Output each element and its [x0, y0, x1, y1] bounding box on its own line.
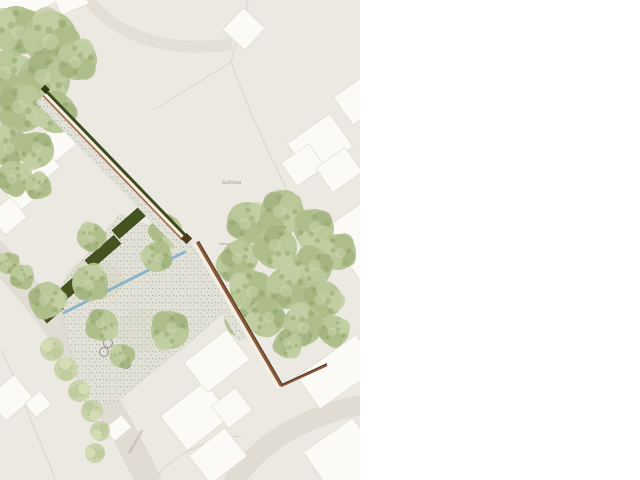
- tree: [10, 265, 34, 290]
- label-schloss: Schloss: [222, 180, 242, 186]
- tree: [85, 309, 118, 341]
- tree: [40, 337, 64, 361]
- page-margin: [360, 0, 640, 480]
- label-area-small: Wiese: [219, 242, 230, 246]
- screenshot-canvas: Schloss Wiese Wilhelmstraße: [0, 0, 640, 480]
- site-plan-map: Schloss Wiese Wilhelmstraße: [0, 0, 360, 480]
